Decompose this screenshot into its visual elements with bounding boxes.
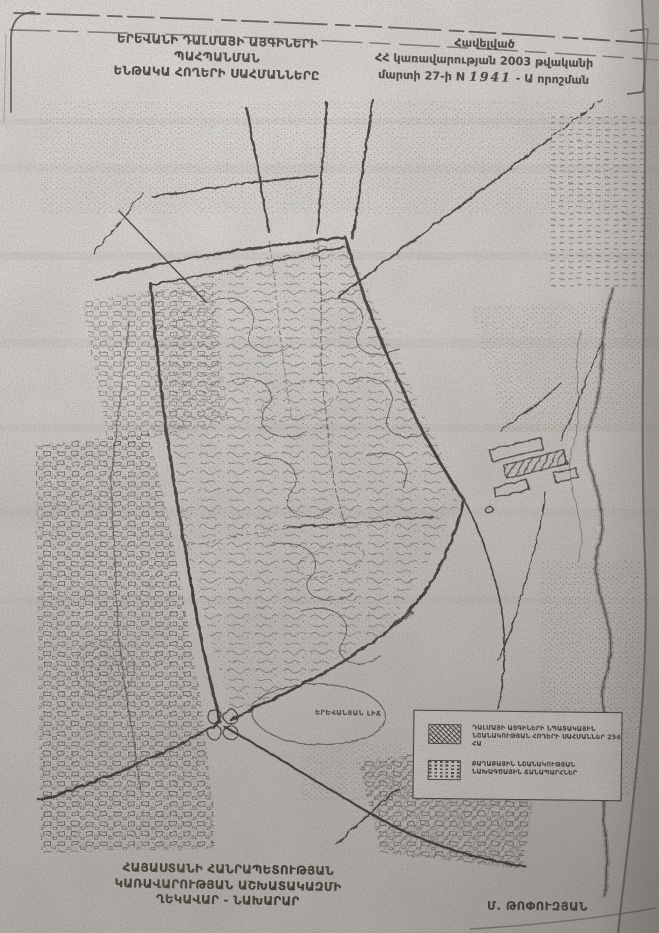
legend-item2-line2: ՆԱԽԱԳԾԱՅԻՆ ՃԱՆԱՊԱՐՀՆԵՐ (472, 768, 624, 778)
legend-item-protected-lands: ԴԱԼՄԱՅԻ ԱՅԳԻՆԵՐԻ ՆՊԱՏԱԿԱՅԻՆ ՆՇԱՆԱԿՈՒԹՅԱՆ… (428, 724, 624, 750)
decree-number: 1941 (469, 69, 512, 85)
signatory-title: ՀԱՅԱՍՏԱՆԻ ՀԱՆՐԱՊԵՏՈՒԹՅԱՆ ԿԱՌԱՎԱՐՈՒԹՅԱՆ Ա… (72, 859, 385, 911)
scanned-decree-page: ԵՐԵՎԱՆԻ ԴԱԼՄԱՅԻ ԱՅԳԻՆԵՐԻ ՊԱՀՊԱՆՄԱՆ ԵՆԹԱԿ… (0, 0, 659, 933)
legend-item-planned-roads: ՔԱՂԱՔԱՅԻՆ ՆՇԱՆԱԿՈՒԹՅԱՆ ՆԱԽԱԳԾԱՅԻՆ ՃԱՆԱՊԱ… (428, 760, 624, 782)
legend-item-text: ՔԱՂԱՔԱՅԻՆ ՆՇԱՆԱԿՈՒԹՅԱՆ ՆԱԽԱԳԾԱՅԻՆ ՃԱՆԱՊԱ… (472, 760, 624, 778)
legend-item1-line2: ՆՇԱՆԱԿՈՒԹՅԱՆ ՀՈՂԵՐԻ ՍԱՀՄԱՆՆԵՐ 254 ՀԱ (472, 732, 624, 750)
legend-swatch-crosshatch-icon (428, 724, 461, 744)
map-legend: ԴԱԼՄԱՅԻ ԱՅԳԻՆԵՐԻ ՆՊԱՏԱԿԱՅԻՆ ՆՇԱՆԱԿՈՒԹՅԱՆ… (412, 710, 622, 802)
document-title: ԵՐԵՎԱՆԻ ԴԱԼՄԱՅԻ ԱՅԳԻՆԵՐԻ ՊԱՀՊԱՆՄԱՆ ԵՆԹԱԿ… (85, 29, 348, 84)
legend-swatch-dashes-icon (428, 760, 461, 780)
legend-item-text: ԴԱԼՄԱՅԻ ԱՅԳԻՆԵՐԻ ՆՊԱՏԱԿԱՅԻՆ ՆՇԱՆԱԿՈՒԹՅԱՆ… (472, 724, 624, 750)
signature-name: Մ. ԹՈՓՈՒԶՅԱՆ (487, 898, 588, 913)
lake-label: ԵՐԵՎԱՆՅԱՆ ԼԻՃ (315, 708, 381, 717)
appendix-block: Հավելված ՀՀ կառավարության 2003 թվականի մ… (367, 33, 600, 90)
appendix-line3-prefix: մարտի 27-ի N (378, 68, 465, 83)
appendix-line3-suffix: - Ա որոշման (515, 72, 589, 87)
